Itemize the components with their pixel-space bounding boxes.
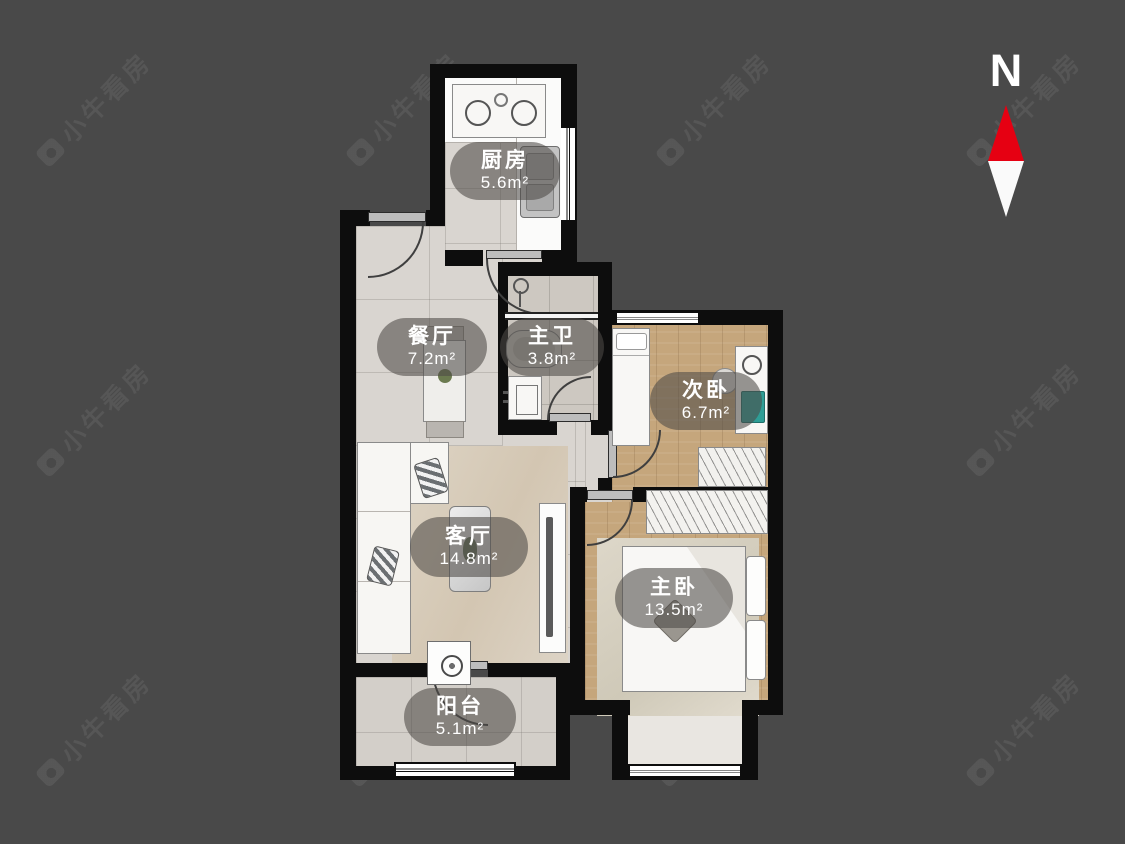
pillow: [746, 556, 766, 616]
blanket-line: [613, 355, 649, 356]
secondary-bed: [612, 328, 650, 446]
room-area: 5.6m²: [481, 173, 529, 193]
wall: [570, 487, 587, 502]
burner-icon: [511, 100, 537, 126]
wall: [556, 663, 570, 780]
dining-chair: [426, 421, 464, 438]
room-label-master-bedroom: 主卧 13.5m²: [615, 568, 733, 628]
compass-arrow-north-icon: [988, 105, 1024, 161]
entry-door-leaf: [368, 212, 426, 222]
room-area: 5.1m²: [436, 719, 484, 739]
wall: [768, 310, 783, 715]
room-name: 厨房: [481, 148, 529, 173]
room-area: 14.8m²: [440, 549, 499, 569]
stove-knob-icon: [494, 93, 508, 107]
master-bedroom-door-leaf: [587, 490, 633, 500]
burner-icon: [465, 100, 491, 126]
wall: [498, 420, 557, 435]
bay-window: [628, 764, 742, 778]
room-label-living: 客厅 14.8m²: [410, 517, 528, 577]
stove-icon: [452, 84, 546, 138]
wall: [598, 478, 612, 490]
watermark-logo-icon: [34, 756, 66, 788]
kitchen-door-leaf: [486, 250, 542, 259]
room-label-secondary-bedroom: 次卧 6.7m²: [650, 372, 762, 430]
watermark: 小牛看房: [649, 43, 779, 173]
faucet-icon: [503, 391, 508, 394]
compass-arrow-south-icon: [988, 161, 1024, 217]
compass-north-label: N: [990, 48, 1023, 93]
room-name: 主卫: [528, 324, 576, 349]
watermark-logo-icon: [34, 136, 66, 168]
wall: [356, 663, 432, 677]
shower-hose-icon: [519, 291, 521, 307]
flower-icon: [441, 655, 463, 677]
vanity-basin: [516, 385, 538, 415]
room-name: 客厅: [445, 524, 493, 549]
tv-stand: [539, 503, 566, 653]
tv-icon: [546, 517, 553, 637]
room-label-balcony: 阳台 5.1m²: [404, 688, 516, 746]
wall: [430, 78, 445, 226]
room-label-kitchen: 厨房 5.6m²: [450, 142, 560, 200]
kitchen-window: [559, 126, 577, 222]
watermark-logo-icon: [344, 136, 376, 168]
bathroom-vanity-icon: [508, 376, 542, 420]
room-name: 餐厅: [408, 324, 456, 349]
desk-lamp-icon: [742, 355, 762, 375]
compass: N: [978, 48, 1034, 217]
wall: [560, 78, 577, 126]
wall: [426, 210, 445, 226]
room-label-dining: 餐厅 7.2m²: [377, 318, 487, 376]
wall: [340, 210, 356, 780]
flower-side-table: [427, 641, 471, 685]
balcony-window: [394, 762, 516, 778]
secondary-bedroom-window: [615, 311, 700, 325]
watermark-logo-icon: [34, 446, 66, 478]
room-name: 主卧: [650, 575, 698, 600]
wall: [570, 502, 585, 663]
watermark: 小牛看房: [29, 353, 159, 483]
room-area: 13.5m²: [645, 600, 704, 620]
watermark-logo-icon: [964, 756, 996, 788]
master-wardrobe: [646, 490, 768, 534]
secondary-wardrobe: [698, 447, 766, 487]
room-name: 次卧: [682, 378, 730, 403]
watermark: 小牛看房: [29, 43, 159, 173]
watermark: 小牛看房: [29, 663, 159, 793]
room-name: 阳台: [436, 694, 484, 719]
watermark-logo-icon: [654, 136, 686, 168]
floorplan-canvas: 小牛看房 小牛看房 小牛看房 小牛看房 小牛看房 小牛看房 小牛看房 小牛看房 …: [0, 0, 1125, 844]
pillow: [746, 620, 766, 680]
pillow: [616, 333, 647, 350]
watermark: 小牛看房: [959, 663, 1089, 793]
sofa-cushion-line: [358, 511, 410, 512]
wall: [570, 663, 585, 715]
room-area: 7.2m²: [408, 349, 456, 369]
faucet-icon: [503, 400, 508, 403]
room-label-bathroom: 主卫 3.8m²: [500, 318, 604, 376]
watermark-logo-icon: [964, 446, 996, 478]
room-area: 3.8m²: [528, 349, 576, 369]
room-area: 6.7m²: [682, 403, 730, 423]
bay-window-sill: [628, 712, 742, 765]
shower-icon: [513, 278, 529, 294]
wall: [445, 250, 483, 266]
watermark: 小牛看房: [959, 353, 1089, 483]
